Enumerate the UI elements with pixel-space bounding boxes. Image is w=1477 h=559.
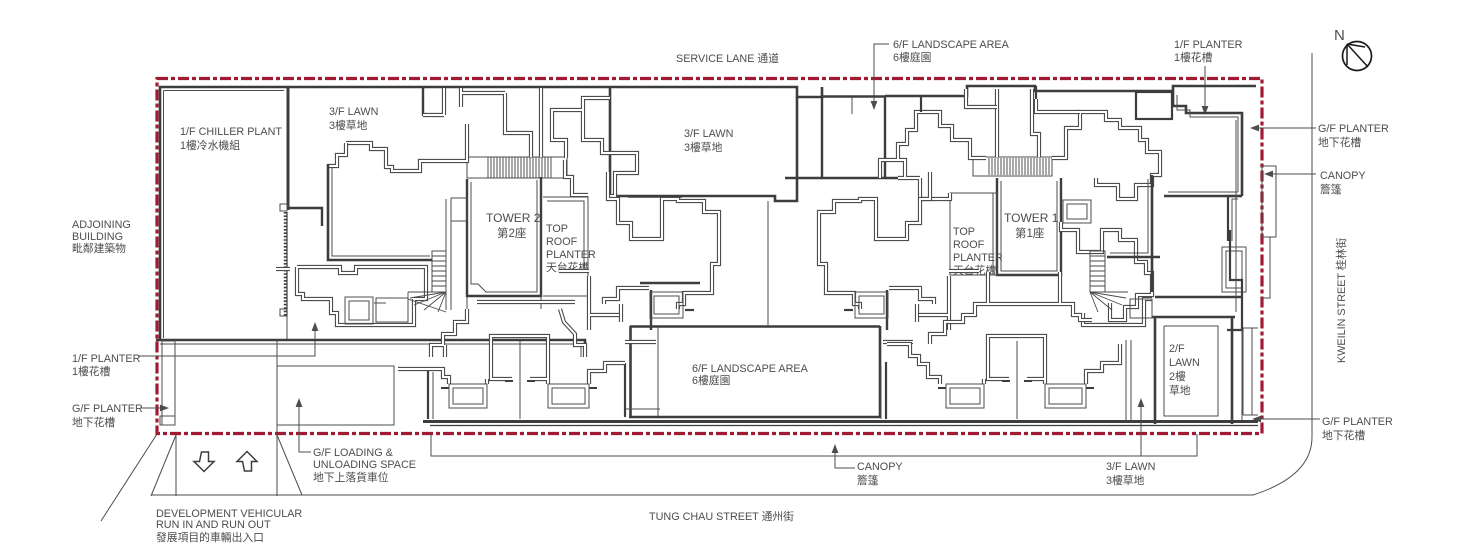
svg-text:TOP: TOP — [953, 226, 975, 238]
svg-text:CANOPY: CANOPY — [857, 461, 903, 473]
svg-text:3/F LAWN: 3/F LAWN — [684, 128, 733, 140]
svg-text:G/F PLANTER: G/F PLANTER — [1318, 123, 1389, 135]
svg-text:3樓草地: 3樓草地 — [684, 140, 723, 154]
svg-text:簷篷: 簷篷 — [857, 473, 879, 487]
svg-text:ROOF: ROOF — [546, 236, 578, 248]
svg-text:1/F PLANTER: 1/F PLANTER — [1174, 39, 1243, 51]
svg-text:1樓花槽: 1樓花槽 — [1174, 50, 1213, 64]
svg-text:3/F LAWN: 3/F LAWN — [329, 106, 378, 118]
svg-text:G/F PLANTER: G/F PLANTER — [72, 403, 143, 415]
svg-text:SERVICE LANE 通道: SERVICE LANE 通道 — [676, 51, 779, 65]
svg-text:ROOF: ROOF — [953, 239, 985, 251]
svg-text:PLANTER: PLANTER — [953, 252, 1003, 264]
svg-text:RUN IN AND RUN OUT: RUN IN AND RUN OUT — [156, 519, 271, 531]
svg-text:LAWN: LAWN — [1169, 357, 1200, 369]
svg-text:ADJOINING: ADJOINING — [72, 219, 131, 231]
svg-text:1/F PLANTER: 1/F PLANTER — [72, 353, 141, 365]
svg-text:BUILDING: BUILDING — [72, 231, 123, 243]
svg-text:TOWER 1: TOWER 1 — [1004, 211, 1059, 225]
svg-text:第2座: 第2座 — [497, 226, 526, 240]
svg-text:PLANTER: PLANTER — [546, 249, 596, 261]
svg-text:地下上落貨車位: 地下上落貨車位 — [313, 470, 389, 484]
svg-text:TOWER 2: TOWER 2 — [486, 211, 541, 225]
svg-text:地下花槽: 地下花槽 — [1322, 429, 1365, 442]
svg-text:1樓花槽: 1樓花槽 — [72, 364, 111, 378]
svg-text:第1座: 第1座 — [1015, 226, 1044, 240]
svg-text:簷篷: 簷篷 — [1320, 182, 1342, 196]
svg-text:6/F LANDSCAPE AREA: 6/F LANDSCAPE AREA — [893, 39, 1010, 51]
svg-text:3樓草地: 3樓草地 — [1106, 473, 1145, 487]
svg-text:2/F: 2/F — [1169, 343, 1185, 355]
svg-text:毗鄰建築物: 毗鄰建築物 — [72, 241, 126, 255]
svg-text:3樓草地: 3樓草地 — [329, 118, 368, 132]
svg-text:G/F PLANTER: G/F PLANTER — [1322, 416, 1393, 428]
svg-text:草地: 草地 — [1169, 384, 1191, 397]
svg-text:1樓冷水機組: 1樓冷水機組 — [180, 138, 240, 152]
svg-text:TUNG CHAU STREET 通州街: TUNG CHAU STREET 通州街 — [649, 509, 794, 523]
svg-text:1/F CHILLER PLANT: 1/F CHILLER PLANT — [180, 126, 282, 138]
svg-text:6樓庭園: 6樓庭園 — [893, 50, 931, 64]
svg-text:地下花槽: 地下花槽 — [1318, 136, 1361, 149]
svg-text:KWEILIN STREET 桂林街: KWEILIN STREET 桂林街 — [1334, 238, 1348, 363]
svg-text:N: N — [1334, 27, 1345, 44]
svg-text:UNLOADING SPACE: UNLOADING SPACE — [313, 459, 416, 471]
svg-text:地下花槽: 地下花槽 — [72, 416, 115, 429]
svg-text:2樓: 2樓 — [1169, 369, 1186, 383]
svg-text:6/F LANDSCAPE AREA: 6/F LANDSCAPE AREA — [692, 363, 809, 375]
svg-text:G/F LOADING &: G/F LOADING & — [313, 447, 394, 459]
svg-text:TOP: TOP — [546, 223, 568, 235]
svg-text:發展項目的車輛出入口: 發展項目的車輛出入口 — [156, 530, 264, 544]
svg-text:6樓庭園: 6樓庭園 — [692, 373, 730, 387]
svg-text:CANOPY: CANOPY — [1320, 170, 1366, 182]
svg-text:3/F LAWN: 3/F LAWN — [1106, 461, 1155, 473]
